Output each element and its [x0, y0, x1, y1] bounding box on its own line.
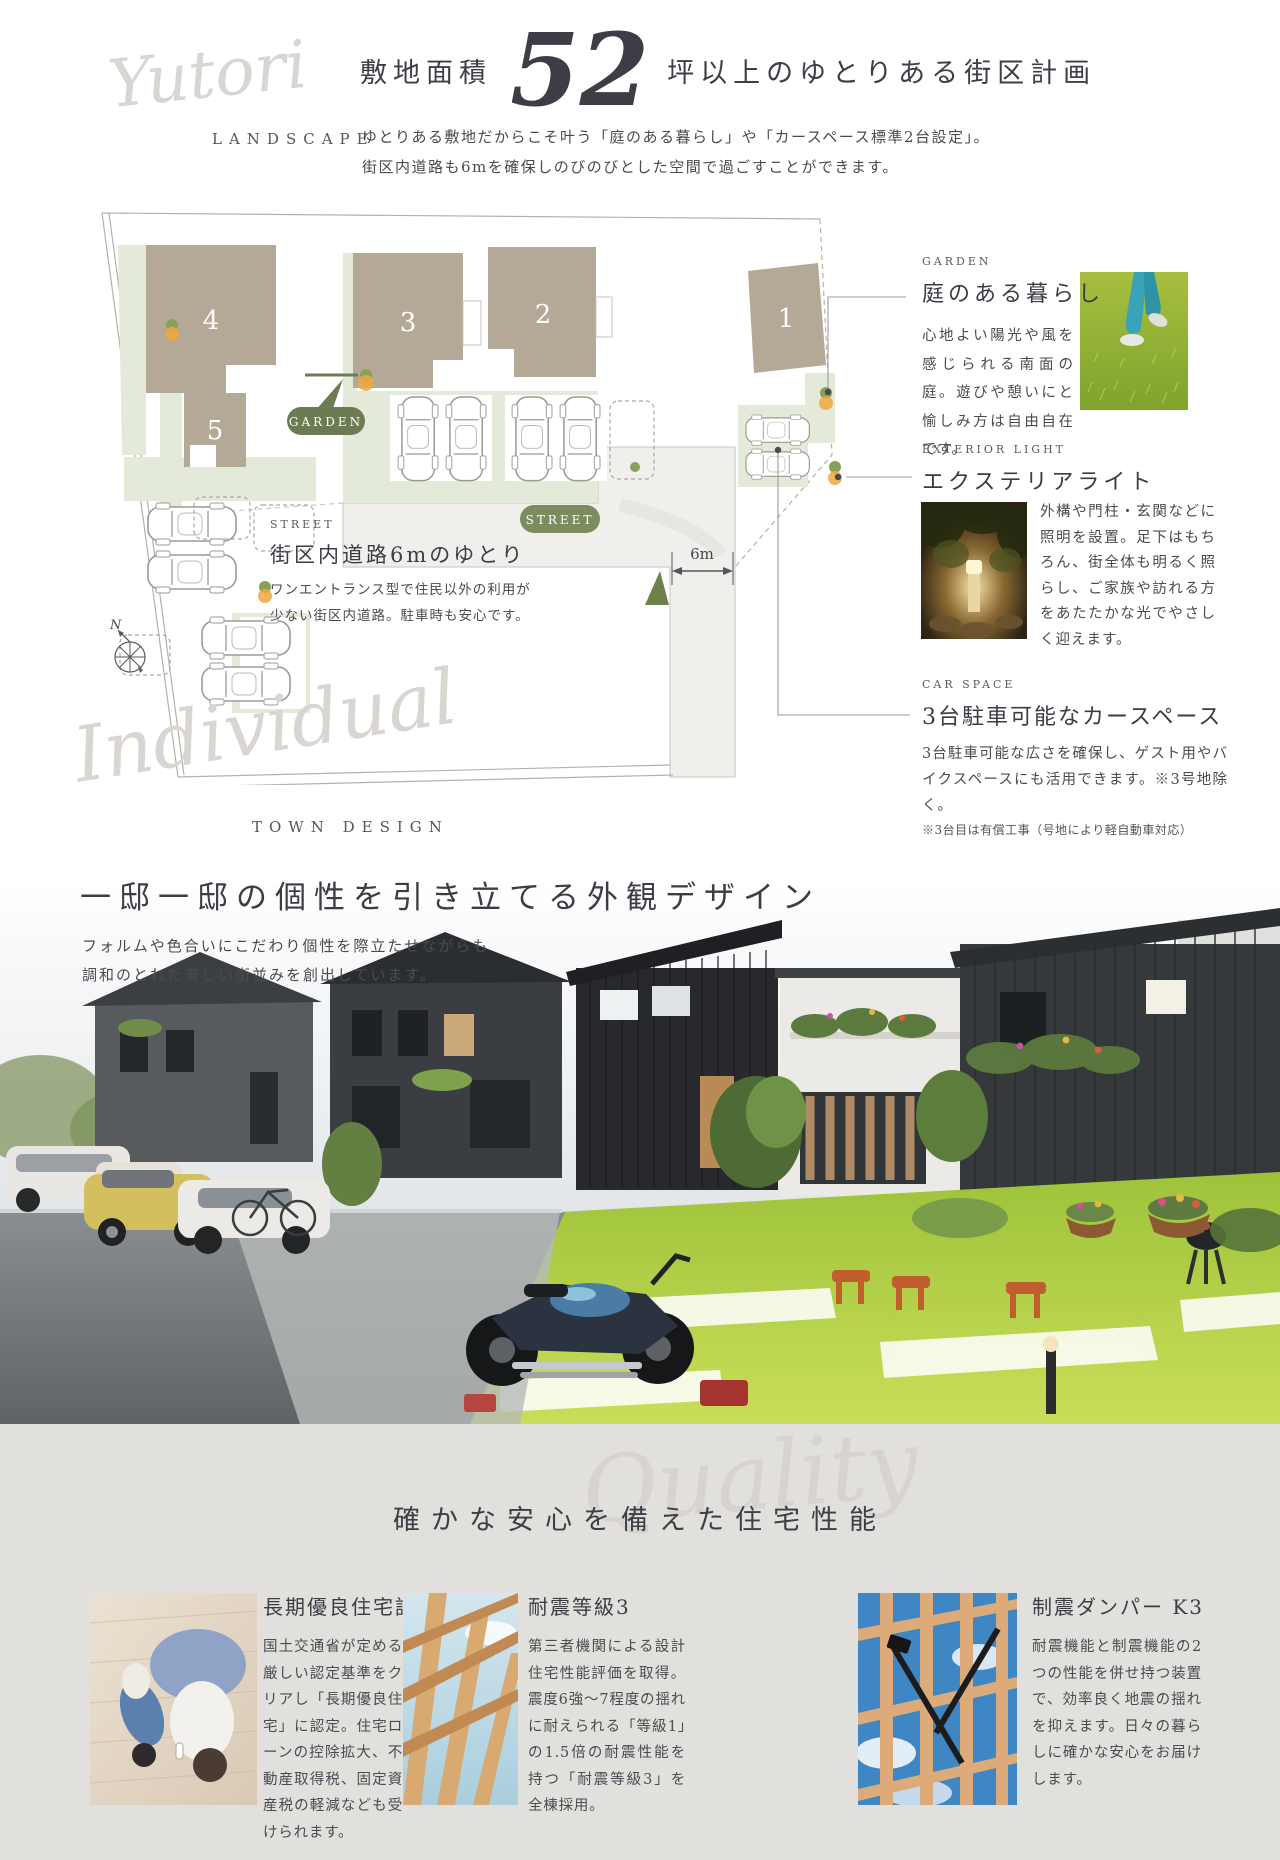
quality-photo-3 — [858, 1593, 1017, 1805]
hero-desc-line1: ゆとりある敷地だからこそ叶う「庭のある暮らし」や「カースペース標準2台設定」。 — [362, 122, 990, 152]
garden-badge-label: GARDEN — [289, 415, 363, 429]
quality-item-2-desc: 第三者機関による設計住宅性能評価を取得。震度6強〜7程度の揺れに耐えられる「等級… — [528, 1634, 686, 1820]
feature-garden: GARDEN 庭のある暮らし 心地よい陽光や風を感じられる南面の庭。遊びや憩いに… — [922, 255, 1104, 465]
quality-item-1-desc: 国土交通省が定める厳しい認定基準をクリアし「長期優良住宅」に認定。住宅ローンの控… — [263, 1634, 403, 1846]
lot-number-1: 1 — [778, 304, 795, 334]
street-info-desc: ワンエントランス型で住民以外の利用が 少ない街区内道路。駐車時も安心です。 — [270, 577, 540, 629]
town-design-desc: フォルムや色合いにこだわり個性を際立たせながらも 調和のとれた美しい街並みを創出… — [82, 932, 489, 990]
hero-title-number: 52 — [510, 30, 649, 110]
quality-title: 確かな安心を備えた住宅性能 — [0, 1498, 1280, 1537]
feature-car-space-label: CAR SPACE — [922, 678, 1228, 691]
quality-item-3-title: 制震ダンパー K3 — [1032, 1591, 1204, 1620]
feature-car-space-title: 3台駐車可能なカースペース — [922, 699, 1228, 731]
feature-exterior-light-desc: 外構や門柱・玄関などに照明を設置。足下はもちろん、街全体も明るく照らし、ご家族や… — [1040, 500, 1216, 653]
lot-number-3: 3 — [400, 308, 417, 338]
feature-car-space-desc: 3台駐車可能な広さを確保し、ゲスト用やバイクスペースにも活用できます。※3号地除… — [922, 741, 1228, 819]
town-design-title: 一邸一邸の個性を引き立てる外観デザイン — [80, 872, 821, 917]
hero-title-suffix: 坪以上のゆとりある街区計画 — [667, 51, 1096, 90]
hero-desc-line2: 街区内道路も6mを確保しのびのびとした空間で過ごすことができます。 — [362, 152, 990, 182]
lot-number-2: 2 — [535, 300, 552, 330]
quality-photo-2 — [403, 1593, 518, 1805]
brochure-page: Yutori LANDSCAPE 敷地面積 52 坪以上のゆとりある街区計画 ゆ… — [0, 0, 1280, 1860]
exterior-light-photo — [921, 502, 1027, 639]
hero-title-prefix: 敷地面積 — [360, 51, 492, 90]
compass-icon: N — [109, 618, 145, 673]
feature-car-space-note: ※3台目は有償工事（号地により軽自動車対応） — [922, 821, 1228, 838]
feature-exterior-light-label: EXTERIOR LIGHT — [922, 443, 1155, 456]
compass-north-label: N — [109, 618, 122, 633]
tree-marker — [645, 571, 669, 605]
quality-item-2-title: 耐震等級3 — [528, 1591, 631, 1620]
street-info-desc-line2: 少ない街区内道路。駐車時も安心です。 — [270, 603, 540, 629]
street-info-label: STREET — [270, 518, 540, 531]
town-design-desc-line1: フォルムや色合いにこだわり個性を際立たせながらも — [82, 932, 489, 961]
street-info-title: 街区内道路6mのゆとり — [270, 539, 540, 569]
landscape-script-label: LANDSCAPE — [212, 130, 375, 148]
hero-desc: ゆとりある敷地だからこそ叶う「庭のある暮らし」や「カースペース標準2台設定」。 … — [362, 122, 990, 182]
street-info: STREET 街区内道路6mのゆとり ワンエントランス型で住民以外の利用が 少な… — [270, 518, 540, 629]
quality-photo-1 — [90, 1593, 257, 1805]
dimension-6m-label: 6m — [690, 545, 714, 563]
street-info-desc-line1: ワンエントランス型で住民以外の利用が — [270, 577, 540, 603]
feature-garden-title: 庭のある暮らし — [922, 276, 1104, 308]
quality-item-3-desc: 耐震機能と制震機能の2つの性能を併せ持つ装置で、効率良く地震の揺れを抑えます。日… — [1032, 1634, 1202, 1793]
feature-exterior-light-title: エクステリアライト — [922, 464, 1155, 496]
town-design-script-label: TOWN DESIGN — [252, 818, 449, 836]
lot-number-5: 5 — [207, 416, 224, 446]
quality-section: Quality 確かな安心を備えた住宅性能 長期優良住宅認定 国土交通省が — [0, 1424, 1280, 1860]
feature-exterior-light: EXTERIOR LIGHT エクステリアライト — [922, 443, 1155, 496]
lot-number-4: 4 — [203, 306, 220, 336]
landscape-script-word: Yutori — [105, 32, 310, 118]
red-toolbox — [700, 1380, 748, 1406]
hero-title: 敷地面積 52 坪以上のゆとりある街区計画 — [360, 30, 1096, 110]
feature-garden-label: GARDEN — [922, 255, 1104, 268]
town-design-desc-line2: 調和のとれた美しい街並みを創出しています。 — [82, 961, 489, 990]
feature-car-space: CAR SPACE 3台駐車可能なカースペース 3台駐車可能な広さを確保し、ゲス… — [922, 678, 1228, 838]
